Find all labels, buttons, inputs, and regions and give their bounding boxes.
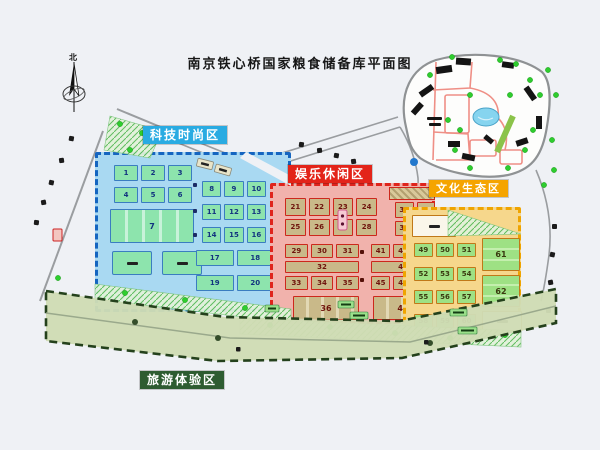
building-11: 11	[202, 204, 221, 220]
building-6: 6	[168, 187, 192, 203]
zone-culture-ecology: 495051 525354 555657 585960 61 62	[403, 207, 521, 332]
building-34: 34	[311, 276, 334, 290]
tech-row-2: 456	[114, 187, 192, 203]
building-15: 15	[224, 227, 243, 243]
building-50: 50	[436, 243, 455, 257]
building-10: 10	[247, 181, 266, 197]
building-7: 7	[110, 209, 194, 243]
label-tourism-experience: 旅游体验区	[140, 371, 224, 389]
label-blob	[177, 262, 188, 265]
building-41: 41	[371, 244, 390, 258]
label-blob	[127, 262, 138, 265]
culture-entry-building	[412, 215, 456, 237]
building-59: 59	[436, 314, 455, 328]
building-17: 17	[196, 250, 234, 266]
building-13: 13	[247, 204, 266, 220]
building-54: 54	[457, 267, 476, 281]
ent-grid-21-28: 2122232425262728	[285, 198, 377, 236]
building-19: 19	[196, 275, 234, 291]
building-23: 23	[333, 198, 354, 216]
ent-row-33-35: 333435	[285, 276, 359, 290]
building-57: 57	[457, 290, 476, 304]
building-24: 24	[356, 198, 377, 216]
precinct-trees	[427, 54, 558, 187]
building-62: 62	[482, 275, 520, 307]
building-18: 18	[237, 250, 275, 266]
label-culture-ecology: 文化生态区	[429, 180, 508, 197]
building-61: 61	[482, 238, 520, 271]
building-16: 16	[247, 227, 266, 243]
building-28: 28	[356, 219, 377, 237]
site-plan-page: { "title": "南京铁心桥国家粮食储备库平面图", "compass":…	[0, 0, 600, 450]
cul-row-58-60: 585960	[414, 314, 476, 328]
building-3: 3	[168, 165, 192, 181]
building-32: 32	[285, 261, 359, 273]
building-8: 8	[202, 181, 221, 197]
building-22: 22	[309, 198, 330, 216]
building-58: 58	[414, 314, 433, 328]
band-text-mark	[424, 340, 429, 345]
precinct-paths	[433, 62, 522, 164]
culture-service-building	[482, 311, 522, 331]
tech-row-19-20: 1920	[196, 275, 274, 291]
building-2: 2	[141, 165, 165, 181]
building-30: 30	[311, 244, 334, 258]
tech-row-1: 123	[114, 165, 192, 181]
building-33: 33	[285, 276, 308, 290]
building-4: 4	[114, 187, 138, 203]
building-9: 9	[224, 181, 243, 197]
building-45: 45	[371, 276, 390, 290]
building-56: 56	[436, 290, 455, 304]
building-35: 35	[336, 276, 359, 290]
building-14: 14	[202, 227, 221, 243]
ent-row-29-31: 293031	[285, 244, 359, 258]
label-entertainment-leisure: 娱乐休闲区	[288, 165, 372, 183]
building-55: 55	[414, 290, 433, 304]
building-20: 20	[237, 275, 275, 291]
building-49: 49	[414, 243, 433, 257]
building-52: 52	[414, 267, 433, 281]
building-25: 25	[285, 219, 306, 237]
building-36: 36	[293, 296, 359, 320]
precinct-info-icon	[410, 158, 418, 166]
cul-row-49-51: 495051	[414, 243, 476, 257]
building-26: 26	[309, 219, 330, 237]
northeast-precinct	[404, 54, 559, 187]
precinct-green-walk	[497, 116, 513, 152]
tech-annex-a	[112, 251, 152, 275]
band-text-mark	[236, 347, 241, 352]
cul-row-52-54: 525354	[414, 267, 476, 281]
building-27: 27	[333, 219, 354, 237]
building-12: 12	[224, 204, 243, 220]
precinct-buildings	[411, 58, 542, 162]
label-tech-fashion: 科技时尚区	[143, 126, 227, 144]
cul-row-55-57: 555657	[414, 290, 476, 304]
west-gate-marker	[53, 229, 62, 241]
label-blob	[497, 320, 508, 323]
building-51: 51	[457, 243, 476, 257]
tech-row-11-13: 111213	[202, 204, 266, 220]
tech-row-17-18: 1718	[196, 250, 274, 266]
building-60: 60	[457, 314, 476, 328]
building-5: 5	[141, 187, 165, 203]
page-title: 南京铁心桥国家粮食储备库平面图	[0, 53, 600, 72]
building-53: 53	[436, 267, 455, 281]
building-31: 31	[336, 244, 359, 258]
tech-row-8-10: 8910	[202, 181, 266, 197]
tech-row-14-16: 141516	[202, 227, 266, 243]
building-1: 1	[114, 165, 138, 181]
pond	[473, 108, 499, 126]
building-21: 21	[285, 198, 306, 216]
building-29: 29	[285, 244, 308, 258]
label-blob	[429, 225, 440, 228]
zone-tech-fashion: 123 456 7 8910 111213 141516 1718 1920	[95, 152, 291, 312]
